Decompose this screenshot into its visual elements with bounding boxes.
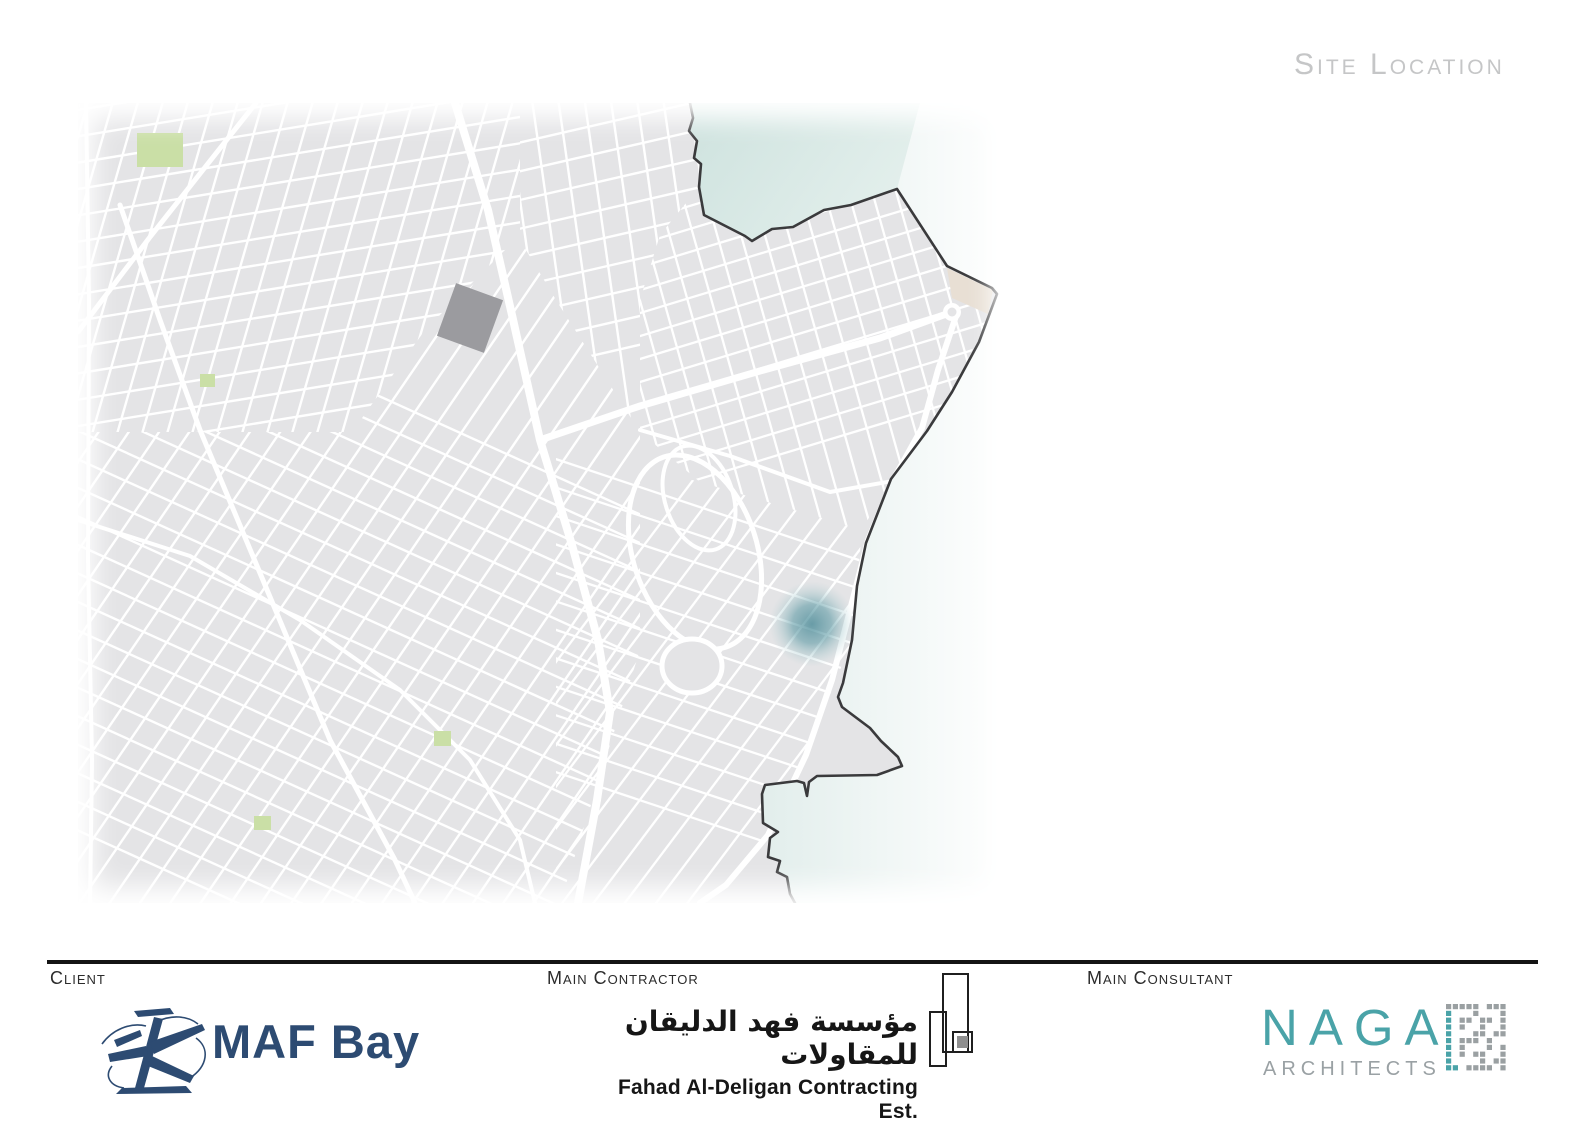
client-label: Client: [50, 968, 106, 989]
naga-kufic-seal-icon: [1445, 1003, 1509, 1075]
page-title: Site Location: [1294, 48, 1505, 82]
park-patch: [200, 374, 215, 387]
maf-bay-logo-icon: [96, 1004, 218, 1100]
contractor-name-arabic: مؤسسة فهد الدليقان للمقاولات: [600, 1005, 918, 1071]
titleblock-rule: [47, 960, 1538, 964]
contractor-logo-icon: [928, 972, 974, 1070]
contractor-label: Main Contractor: [547, 968, 699, 989]
client-name: MAF Bay: [212, 1014, 420, 1069]
city-map-drawing: [78, 103, 1008, 903]
site-marker: [769, 581, 855, 667]
consultant-brand: NAGA: [1261, 998, 1450, 1057]
consultant-brand-sub: ARCHITECTS: [1263, 1058, 1441, 1081]
contractor-name-block: مؤسسة فهد الدليقان للمقاولات Fahad Al-De…: [600, 1005, 918, 1124]
site-location-map: [78, 103, 1008, 903]
contractor-name-english: Fahad Al-Deligan Contracting Est.: [600, 1076, 918, 1124]
consultant-label: Main Consultant: [1087, 968, 1233, 989]
park-patch: [254, 816, 271, 830]
park-patch: [137, 133, 183, 167]
park-patch: [434, 731, 451, 746]
